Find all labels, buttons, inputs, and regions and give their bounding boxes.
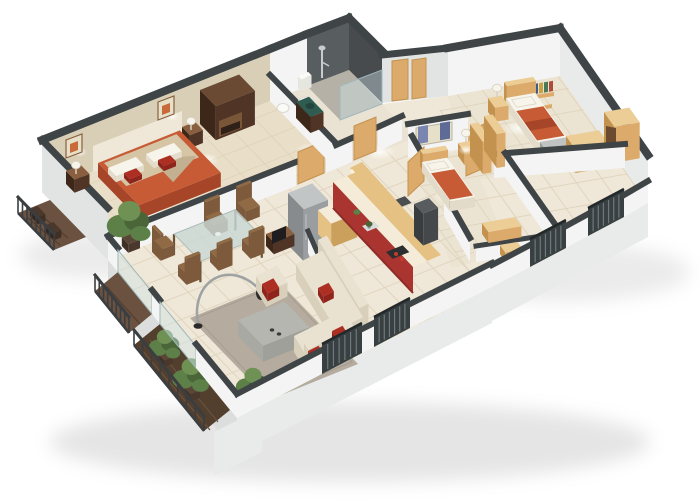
remote [270, 328, 274, 331]
counter-plant [366, 221, 373, 227]
dining-chair-back-side [185, 257, 187, 285]
entrance-door [392, 59, 408, 101]
dining-chair-back-side [217, 243, 219, 271]
plant-foliage [166, 348, 180, 359]
dining-chair-back-front [219, 239, 233, 270]
wall-art-panel-pane [418, 125, 428, 144]
burner [400, 257, 404, 261]
dining-chair-back-side [249, 231, 251, 259]
book [544, 82, 548, 93]
counter-plant [354, 209, 361, 215]
bedside-lamp [187, 117, 196, 125]
bed2-lamp [462, 129, 471, 137]
ground-shadow [50, 402, 650, 482]
shower-head [319, 46, 326, 51]
wall-art-panel-pane [440, 121, 450, 140]
plant-foliage [118, 201, 141, 221]
bed3-nightstand-front [495, 106, 509, 122]
plant-foliage [192, 379, 209, 392]
floor-plan-canvas [0, 0, 700, 500]
dining-chair-back-front [251, 227, 265, 258]
bidet [277, 104, 289, 113]
bedside-lamp [72, 161, 81, 169]
floor-plan-render [0, 0, 700, 500]
book [549, 81, 553, 92]
burner [394, 252, 398, 256]
dining-chair-back-front [187, 253, 201, 284]
remote [277, 332, 281, 335]
bed3-lamp [493, 84, 502, 92]
vanity-sink [306, 103, 315, 109]
table-decor [215, 232, 221, 236]
book [539, 82, 543, 93]
plant-foliage [131, 226, 151, 241]
oven-column-front [423, 208, 438, 246]
arc-lamp-base [194, 323, 203, 329]
entrance-door [412, 58, 426, 99]
